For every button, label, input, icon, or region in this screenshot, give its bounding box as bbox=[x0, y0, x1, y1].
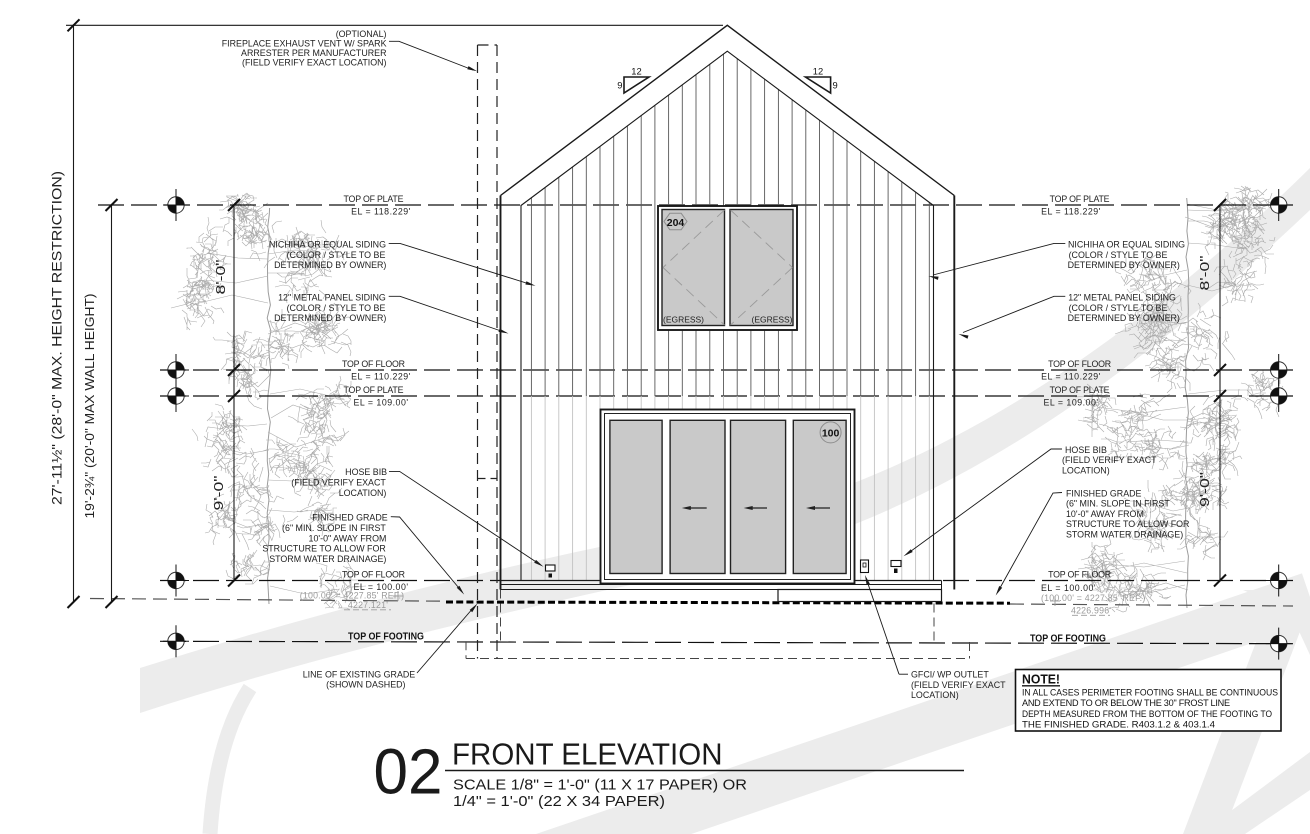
svg-text:(FIELD VERIFY EXACT: (FIELD VERIFY EXACT bbox=[911, 680, 1006, 690]
svg-text:TOP OF PLATE: TOP OF PLATE bbox=[344, 385, 404, 395]
svg-text:TOP OF FLOOR: TOP OF FLOOR bbox=[342, 359, 405, 369]
svg-text:EL = 110.229': EL = 110.229' bbox=[351, 372, 411, 382]
svg-text:TOP OF PLATE: TOP OF PLATE bbox=[1050, 194, 1110, 204]
svg-text:EL = 109.00': EL = 109.00' bbox=[353, 398, 408, 408]
svg-text:STRUCTURE TO ALLOW FOR: STRUCTURE TO ALLOW FOR bbox=[1066, 519, 1189, 529]
svg-text:204: 204 bbox=[667, 217, 685, 229]
svg-text:4227.121': 4227.121' bbox=[348, 600, 388, 610]
svg-text:NOTE!: NOTE! bbox=[1022, 672, 1060, 687]
svg-text:LOCATION): LOCATION) bbox=[911, 690, 959, 700]
svg-text:8'-0": 8'-0" bbox=[213, 259, 228, 295]
svg-text:THE FINISHED GRADE. R403.1.2 &: THE FINISHED GRADE. R403.1.2 & 403.1.4 bbox=[1022, 720, 1215, 730]
svg-text:4226.996': 4226.996' bbox=[1071, 605, 1111, 615]
svg-text:(COLOR / STYLE TO BE: (COLOR / STYLE TO BE bbox=[287, 250, 386, 260]
svg-text:DEPTH MEASURED FROM THE BOTTOM: DEPTH MEASURED FROM THE BOTTOM OF THE FO… bbox=[1022, 709, 1272, 719]
svg-text:12: 12 bbox=[631, 65, 641, 76]
svg-text:12" METAL PANEL SIDING: 12" METAL PANEL SIDING bbox=[278, 293, 386, 303]
svg-text:12" METAL PANEL SIDING: 12" METAL PANEL SIDING bbox=[1068, 293, 1176, 303]
svg-text:STRUCTURE TO ALLOW FOR: STRUCTURE TO ALLOW FOR bbox=[262, 544, 385, 554]
svg-text:FINISHED GRADE: FINISHED GRADE bbox=[312, 513, 388, 523]
svg-text:DETERMINED BY OWNER): DETERMINED BY OWNER) bbox=[274, 260, 386, 270]
svg-text:27'-11½" (28'-0" MAX. HEIGHT: 27'-11½" (28'-0" MAX. HEIGHT RESTRICTION… bbox=[50, 171, 65, 505]
svg-text:02: 02 bbox=[374, 736, 443, 808]
svg-text:STORM WATER DRAINAGE): STORM WATER DRAINAGE) bbox=[269, 554, 386, 564]
svg-text:EL = 100.00': EL = 100.00' bbox=[1041, 583, 1096, 593]
svg-text:9: 9 bbox=[617, 80, 622, 91]
svg-text:NICHIHA OR EQUAL SIDING: NICHIHA OR EQUAL SIDING bbox=[1068, 240, 1185, 250]
svg-text:FIREPLACE EXHAUST VENT W/ SPAR: FIREPLACE EXHAUST VENT W/ SPARK bbox=[222, 39, 387, 49]
svg-text:(100.00' = 4227.85' REF.): (100.00' = 4227.85' REF.) bbox=[1041, 593, 1145, 603]
svg-text:TOP OF FOOTING: TOP OF FOOTING bbox=[348, 632, 424, 643]
svg-text:DETERMINED BY OWNER): DETERMINED BY OWNER) bbox=[1068, 260, 1180, 270]
svg-text:EL = 118.229': EL = 118.229' bbox=[1041, 207, 1101, 217]
svg-text:GFCI/ WP OUTLET: GFCI/ WP OUTLET bbox=[911, 670, 989, 680]
svg-text:(FIELD VERIFY EXACT: (FIELD VERIFY EXACT bbox=[1062, 455, 1157, 465]
svg-text:STORM WATER DRAINAGE): STORM WATER DRAINAGE) bbox=[1066, 530, 1183, 540]
svg-text:9: 9 bbox=[833, 80, 838, 91]
svg-text:AND EXTEND TO OR BELOW THE 30": AND EXTEND TO OR BELOW THE 30" FROST LIN… bbox=[1022, 698, 1230, 708]
svg-text:EL = 109.00': EL = 109.00' bbox=[1043, 398, 1098, 408]
svg-text:1/4" = 1'-0" (22 X 34 PAPER): 1/4" = 1'-0" (22 X 34 PAPER) bbox=[453, 793, 665, 810]
svg-text:(FIELD VERIFY EXACT: (FIELD VERIFY EXACT bbox=[291, 478, 386, 488]
svg-text:(100.00' = 4227.85' REF.): (100.00' = 4227.85' REF.) bbox=[300, 591, 404, 601]
svg-text:(FIELD VERIFY EXACT LOCATION): (FIELD VERIFY EXACT LOCATION) bbox=[242, 58, 387, 68]
svg-text:TOP OF PLATE: TOP OF PLATE bbox=[344, 194, 404, 204]
svg-text:10'-0" AWAY FROM: 10'-0" AWAY FROM bbox=[309, 533, 387, 543]
svg-text:TOP OF FOOTING: TOP OF FOOTING bbox=[1030, 633, 1106, 644]
svg-text:HOSE BIB: HOSE BIB bbox=[1065, 445, 1107, 455]
svg-text:TOP OF PLATE: TOP OF PLATE bbox=[1050, 385, 1110, 395]
svg-text:9'-0": 9'-0" bbox=[1197, 471, 1212, 507]
svg-text:DETERMINED BY OWNER): DETERMINED BY OWNER) bbox=[1068, 313, 1180, 323]
svg-text:9'-0": 9'-0" bbox=[211, 475, 226, 511]
svg-text:(COLOR / STYLE TO BE: (COLOR / STYLE TO BE bbox=[287, 303, 386, 313]
svg-text:HOSE BIB: HOSE BIB bbox=[345, 467, 387, 477]
svg-text:19'-2¾" (20'-0" MAX WALL HEIGH: 19'-2¾" (20'-0" MAX WALL HEIGHT) bbox=[82, 294, 97, 519]
svg-text:(6" MIN. SLOPE IN FIRST: (6" MIN. SLOPE IN FIRST bbox=[282, 523, 386, 533]
svg-text:TOP OF FLOOR: TOP OF FLOOR bbox=[1048, 359, 1111, 369]
svg-text:EL = 110.229': EL = 110.229' bbox=[1041, 372, 1101, 382]
svg-text:(COLOR / STYLE TO BE: (COLOR / STYLE TO BE bbox=[1069, 250, 1168, 260]
svg-text:10'-0" AWAY FROM: 10'-0" AWAY FROM bbox=[1066, 509, 1144, 519]
svg-text:8'-0": 8'-0" bbox=[1197, 255, 1212, 291]
svg-text:SCALE 1/8" = 1'-0" (11 X 17 PA: SCALE 1/8" = 1'-0" (11 X 17 PAPER) OR bbox=[453, 777, 747, 794]
svg-text:FINISHED GRADE: FINISHED GRADE bbox=[1066, 488, 1142, 498]
svg-text:EL = 118.229': EL = 118.229' bbox=[351, 207, 411, 217]
svg-text:LOCATION): LOCATION) bbox=[339, 488, 387, 498]
svg-text:LOCATION): LOCATION) bbox=[1062, 465, 1110, 475]
svg-text:(EGRESS): (EGRESS) bbox=[663, 315, 704, 325]
svg-text:100: 100 bbox=[822, 427, 840, 439]
svg-text:DETERMINED BY OWNER): DETERMINED BY OWNER) bbox=[274, 313, 386, 323]
svg-text:(OPTIONAL): (OPTIONAL) bbox=[336, 29, 387, 39]
svg-text:ARRESTER PER MANUFACTURER: ARRESTER PER MANUFACTURER bbox=[241, 48, 386, 58]
svg-text:(SHOWN DASHED): (SHOWN DASHED) bbox=[326, 680, 405, 690]
svg-text:FRONT ELEVATION: FRONT ELEVATION bbox=[452, 737, 723, 771]
svg-text:(6" MIN. SLOPE IN FIRST: (6" MIN. SLOPE IN FIRST bbox=[1066, 499, 1170, 509]
svg-text:LINE OF EXISTING GRADE: LINE OF EXISTING GRADE bbox=[303, 670, 416, 680]
svg-text:(EGRESS): (EGRESS) bbox=[752, 315, 793, 325]
svg-text:IN ALL CASES PERIMETER FOOTING: IN ALL CASES PERIMETER FOOTING SHALL BE … bbox=[1022, 687, 1278, 697]
svg-text:TOP OF FLOOR: TOP OF FLOOR bbox=[342, 570, 405, 580]
svg-text:TOP OF FLOOR: TOP OF FLOOR bbox=[1048, 570, 1111, 580]
svg-text:(COLOR / STYLE TO BE: (COLOR / STYLE TO BE bbox=[1069, 303, 1168, 313]
svg-text:12: 12 bbox=[813, 65, 823, 76]
svg-text:NICHIHA OR EQUAL SIDING: NICHIHA OR EQUAL SIDING bbox=[269, 240, 386, 250]
